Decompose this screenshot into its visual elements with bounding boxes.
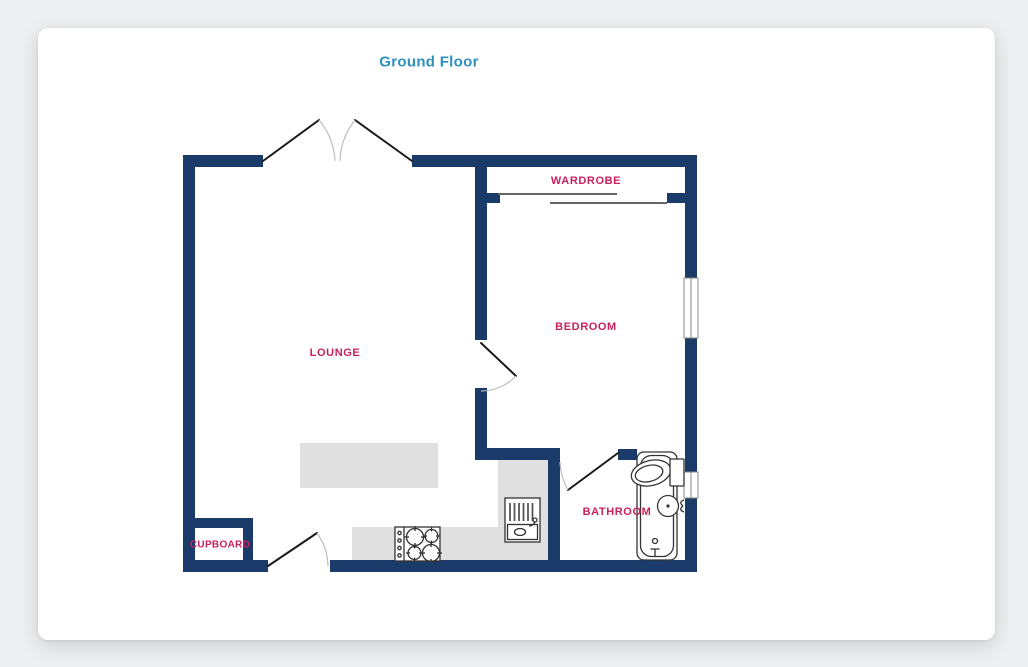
room-label-wardrobe: WARDROBE <box>551 175 621 187</box>
room-label-bedroom: BEDROOM <box>555 321 617 333</box>
bathroom-window <box>684 472 698 498</box>
page: { "title": "Ground Floor", "rooms": [ {"… <box>0 0 1028 667</box>
bathroom-door-icon <box>560 453 618 490</box>
entry-double-door-icon <box>263 120 412 161</box>
room-label-bathroom: BATHROOM <box>583 506 652 518</box>
hob-icon <box>395 526 442 562</box>
room-label-lounge: LOUNGE <box>310 347 361 359</box>
room-label-cupboard: CUPBOARD <box>190 540 250 551</box>
bedroom-window <box>684 278 698 338</box>
bedroom-door-icon <box>481 343 516 391</box>
lounge-island-counter <box>300 443 438 488</box>
kitchen-sink-icon <box>505 498 540 542</box>
kitchen-door-icon <box>268 533 328 566</box>
floor-plan-svg <box>0 0 1028 667</box>
wardrobe-sliding-doors-icon <box>498 194 667 203</box>
basin-icon <box>658 496 685 517</box>
